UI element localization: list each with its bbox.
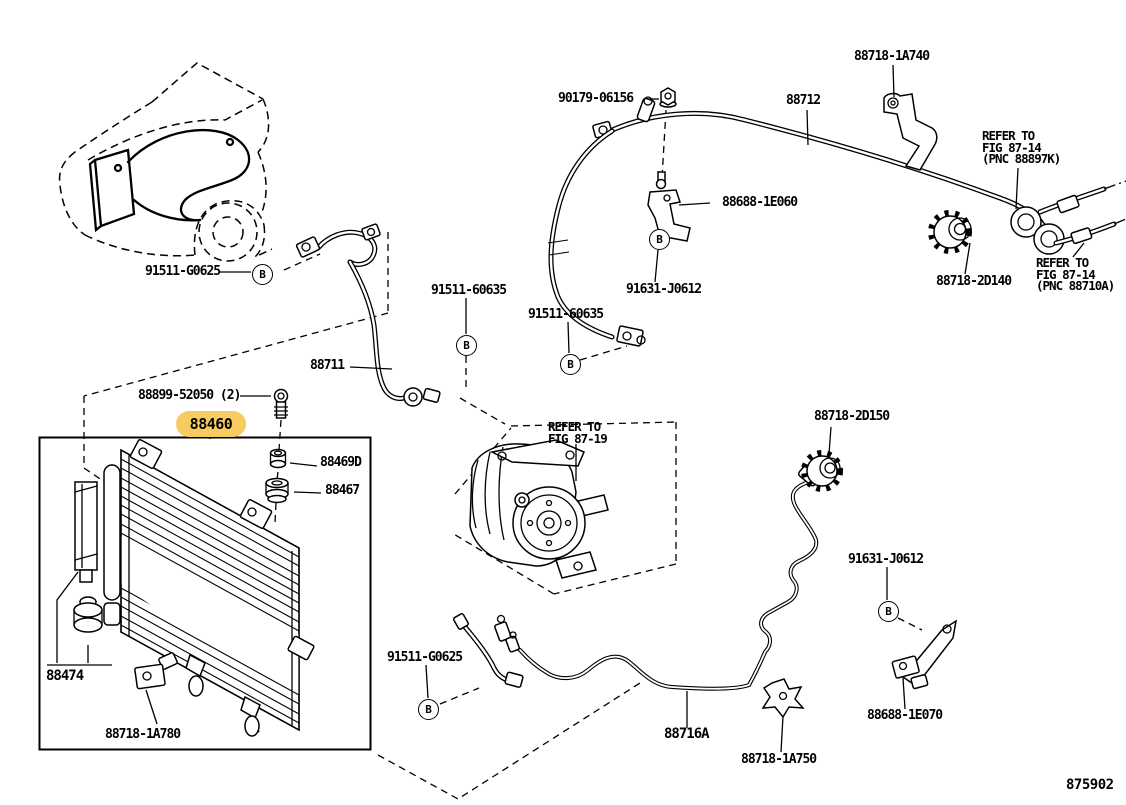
tube-valve-cluster xyxy=(494,616,519,653)
part-label-88711[interactable]: 88711 xyxy=(310,360,344,371)
part-label-88469d[interactable]: 88469D xyxy=(320,457,361,468)
part-label-88467[interactable]: 88467 xyxy=(325,485,359,496)
receiver-drier-88474-drawing xyxy=(47,482,112,665)
part-label-91631-j0612-1[interactable]: 91631-J0612 xyxy=(626,284,701,295)
note-refer-fig-87-14-lower: REFER TO FIG 87-14 (PNC 88710A) xyxy=(1036,257,1114,292)
note-line: (PNC 88710A) xyxy=(1036,280,1114,292)
screw-88899-drawing xyxy=(274,390,288,419)
part-label-nut-90179[interactable]: 90179-06156 xyxy=(558,93,633,104)
part-label-88712[interactable]: 88712 xyxy=(786,95,820,106)
connector-marker-b-1: B xyxy=(252,264,273,285)
part-label-88718-1a780[interactable]: 88718-1A780 xyxy=(105,729,180,740)
condenser-88460-drawing xyxy=(40,390,371,750)
suction-hose-88711-drawing xyxy=(296,224,440,406)
connector-marker-b-6: B xyxy=(418,699,439,720)
part-label-88718-2d150[interactable]: 88718-2D150 xyxy=(814,411,889,422)
part-label-88899-52050[interactable]: 88899-52050 (2) xyxy=(138,390,240,401)
connector-marker-b-5: B xyxy=(878,601,899,622)
note-line: (PNC 88897K) xyxy=(982,153,1060,165)
car-condenser-route xyxy=(90,130,249,230)
parts-diagram: 90179-06156 88712 88718-1A740 88688-1E06… xyxy=(0,0,1126,805)
note-refer-fig-87-19: REFER TO FIG 87-19 xyxy=(548,421,607,444)
bracket-88688-1e070-drawing xyxy=(892,621,956,689)
grommet-88718-2d140-drawing xyxy=(931,213,971,251)
clamp-88718-1a750-drawing xyxy=(763,679,803,717)
part-label-88716a[interactable]: 88716A xyxy=(664,729,709,740)
part-label-88718-2d140[interactable]: 88718-2D140 xyxy=(936,276,1011,287)
grommet-88718-2d150-drawing xyxy=(804,453,840,489)
note-line: FIG 87-19 xyxy=(548,433,607,445)
bracket-88718-1a740-drawing xyxy=(884,94,937,170)
car-inset-sketch xyxy=(60,63,272,261)
compressor-drawing xyxy=(470,440,608,578)
part-label-91631-j0612-2[interactable]: 91631-J0612 xyxy=(848,554,923,565)
highlighted-part-label[interactable]: 88460 xyxy=(176,411,246,437)
cushion-88469d-drawing xyxy=(271,450,286,468)
connector-marker-b-4: B xyxy=(649,229,670,250)
clamp-88718-1a780-drawing xyxy=(135,652,178,689)
double-ring-88897k-drawing xyxy=(1011,207,1064,254)
part-label-88474[interactable]: 88474 xyxy=(46,671,83,682)
nut-90179-drawing xyxy=(660,88,676,107)
connector-marker-b-2: B xyxy=(456,335,477,356)
connector-marker-b-3: B xyxy=(560,354,581,375)
part-label-88688-1e060[interactable]: 88688-1E060 xyxy=(722,197,797,208)
cushion-88467-drawing xyxy=(266,479,288,503)
part-label-91511-60635-1[interactable]: 91511-60635 xyxy=(431,285,506,296)
part-label-91511-g0625-1[interactable]: 91511-G0625 xyxy=(145,266,220,277)
part-label-88718-1a740[interactable]: 88718-1A740 xyxy=(854,51,929,62)
figure-number: 875902 xyxy=(1066,777,1114,793)
part-label-91511-g0625-2[interactable]: 91511-G0625 xyxy=(387,652,462,663)
part-label-88688-1e070[interactable]: 88688-1E070 xyxy=(867,710,942,721)
part-label-91511-60635-2[interactable]: 91511-60635 xyxy=(528,309,603,320)
part-label-88718-1a750[interactable]: 88718-1A750 xyxy=(741,754,816,765)
note-refer-fig-87-14-upper: REFER TO FIG 87-14 (PNC 88897K) xyxy=(982,130,1060,165)
